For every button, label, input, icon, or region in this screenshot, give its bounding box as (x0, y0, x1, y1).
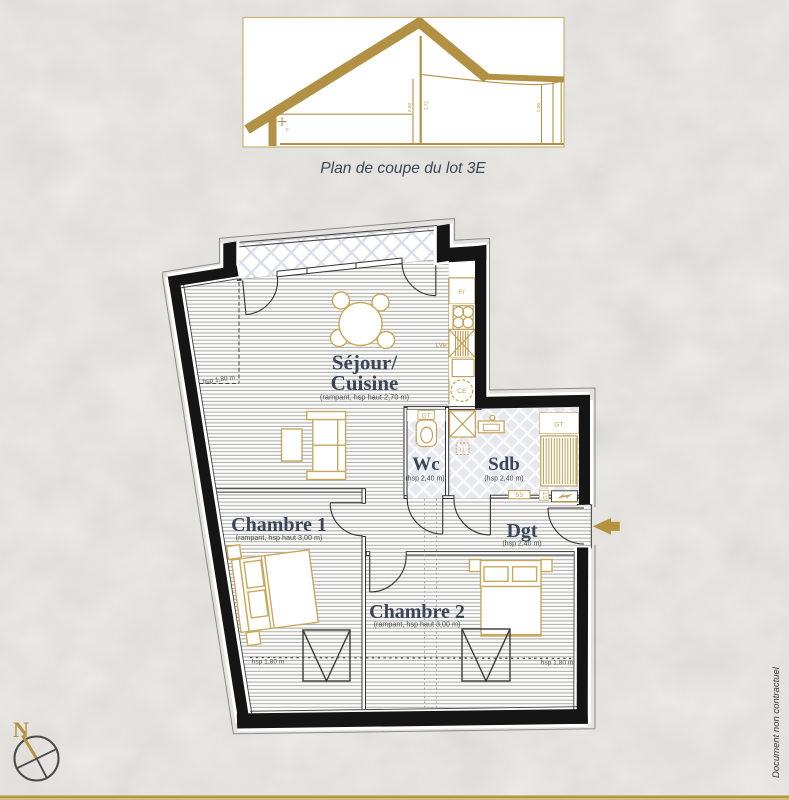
svg-text:hsp 1,80 m: hsp 1,80 m (541, 660, 574, 667)
svg-text:Cuisine: Cuisine (331, 371, 399, 395)
svg-text:2.72: 2.72 (424, 101, 429, 110)
svg-text:N: N (13, 717, 29, 742)
svg-text:70: 70 (286, 128, 290, 132)
svg-text:Document non contractuel: Document non contractuel (771, 666, 782, 778)
svg-text:(hsp 2,40 m): (hsp 2,40 m) (502, 541, 541, 548)
svg-text:Wc: Wc (412, 454, 439, 475)
svg-text:(rampant, hsp haut 3,00 m): (rampant, hsp haut 3,00 m) (236, 533, 323, 542)
svg-text:hsp 1,80 m: hsp 1,80 m (252, 659, 285, 666)
svg-text:(hsp 2,40 m): (hsp 2,40 m) (484, 476, 523, 483)
svg-text:Plan de coupe du lot 3E: Plan de coupe du lot 3E (320, 160, 486, 177)
svg-text:(rampant, hsp haut 2,70 m): (rampant, hsp haut 2,70 m) (320, 393, 409, 402)
svg-text:(hsp 2,40 m): (hsp 2,40 m) (405, 476, 444, 483)
svg-text:GT: GT (543, 491, 549, 500)
svg-text:CE: CE (457, 388, 467, 395)
svg-text:Fr: Fr (459, 289, 466, 296)
svg-text:GT: GT (422, 413, 431, 420)
svg-text:GT: GT (554, 422, 563, 429)
svg-text:SS: SS (515, 493, 523, 499)
svg-text:(rampant, hsp haut 3,00 m): (rampant, hsp haut 3,00 m) (374, 620, 461, 629)
svg-text:LVe: LVe (435, 342, 446, 349)
svg-text:Dgt: Dgt (506, 520, 537, 542)
svg-text:2.30: 2.30 (536, 103, 541, 112)
svg-text:Sdb: Sdb (488, 454, 520, 475)
svg-text:LL: LL (460, 447, 466, 453)
svg-text:2.50: 2.50 (407, 103, 412, 112)
